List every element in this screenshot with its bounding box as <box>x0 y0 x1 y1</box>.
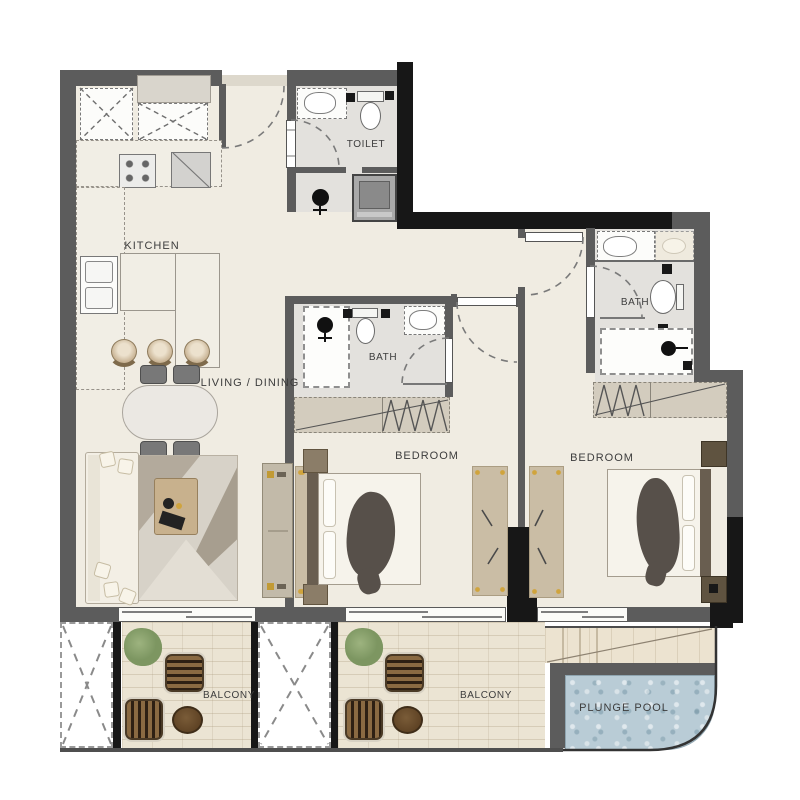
balcony1-chair <box>125 699 163 740</box>
jamb-bedroom2-door <box>518 229 525 238</box>
room-label-kitchen: KITCHEN <box>124 240 179 252</box>
sliding-door-bedroom1 <box>345 607 506 622</box>
appliance-box-1 <box>80 88 133 140</box>
bath1-fitting <box>381 309 390 318</box>
bedroom1-headboard <box>307 473 318 585</box>
bath1-toilet-tank <box>352 308 378 318</box>
shower-tray <box>359 181 390 209</box>
wall-between-bedrooms <box>518 287 525 527</box>
tv-console <box>262 463 293 598</box>
bedroom1-pillow <box>323 531 336 579</box>
bath1-shower-head-icon <box>317 317 333 333</box>
wall-bath1-right-b <box>445 383 453 397</box>
bedroom2-door <box>525 232 583 242</box>
balcony2-table <box>392 706 423 734</box>
kitchen-sink-basin-1 <box>85 261 113 283</box>
balcony1-table <box>172 706 203 734</box>
wall-right-upper <box>694 229 710 372</box>
wall-black-vertical <box>397 62 413 212</box>
room-label-bedroom1: BEDROOM <box>395 450 459 462</box>
bath2-toilet-tank <box>676 284 684 310</box>
bedroom2-pillow <box>682 525 695 571</box>
room-label-bedroom2: BEDROOM <box>570 452 634 464</box>
coffee-table-accent <box>176 503 182 509</box>
void-area-middle <box>258 622 331 748</box>
entry-door-leaf <box>219 84 226 148</box>
balcony1-chair <box>165 654 204 692</box>
console-decor <box>277 584 286 589</box>
void-area-left <box>60 622 113 748</box>
balcony-divider-b <box>251 622 258 748</box>
dining-table <box>122 385 218 440</box>
fridge <box>171 152 211 188</box>
bedroom2-pillow <box>682 475 695 521</box>
sofa-back-cushions <box>88 455 100 601</box>
balcony-divider-c <box>331 622 338 748</box>
dining-chair <box>173 365 200 384</box>
room-label-plunge-pool: PLUNGE POOL <box>579 702 669 714</box>
toilet-room-sink-basin <box>304 92 336 114</box>
sofa-pillow <box>99 451 117 469</box>
room-label-toilet: TOILET <box>347 139 385 150</box>
wall-toilet-left-b <box>287 168 296 212</box>
room-label-bath2: BATH <box>621 297 649 308</box>
kitchen-peninsula-seam <box>176 254 219 309</box>
jamb-bedroom1-door-right <box>516 294 524 307</box>
balcony2-chair <box>345 699 383 740</box>
console-decor <box>277 472 286 477</box>
toilet-fitting <box>385 91 394 100</box>
floor-plan: KITCHEN TOILET LIVING / DINING BATH BATH… <box>0 0 800 800</box>
wall-top-toilet <box>287 70 399 86</box>
bedroom1-nightstand-bottom <box>303 584 328 605</box>
sliding-door-living <box>118 607 256 622</box>
wall-bath1-top <box>285 296 453 304</box>
bedroom2-headboard <box>700 469 711 577</box>
bedroom2-rug <box>529 466 564 598</box>
wall-right-lower <box>727 382 743 517</box>
column-bottom-right <box>710 600 733 628</box>
toilet-bowl <box>360 102 381 130</box>
wall-bath2-left-a <box>586 228 595 266</box>
stove <box>119 154 156 188</box>
console-shelf-line <box>268 530 288 532</box>
bath2-bathtub <box>600 328 693 375</box>
appliance-box-2 <box>138 103 208 140</box>
bath2-tub-drain <box>683 361 692 370</box>
sliding-door-bedroom2 <box>537 607 628 622</box>
bedroom2-nightstand-top <box>701 441 727 467</box>
balcony1-plant <box>124 628 162 666</box>
bedroom1-door <box>457 297 517 306</box>
shower-head-icon <box>312 189 329 206</box>
room-label-bath1: BATH <box>369 352 397 363</box>
wall-toilet-divider-a <box>296 167 346 173</box>
bath2-fitting <box>662 264 672 274</box>
bedroom2-wardrobe <box>593 382 727 418</box>
bath1-toilet-bowl <box>356 318 375 344</box>
dining-chair <box>140 365 167 384</box>
wall-bottom-a <box>60 607 118 622</box>
sofa-pillow <box>117 458 134 475</box>
console-accent <box>267 583 274 590</box>
balcony2-plant <box>345 628 383 666</box>
kitchen-counter-marble <box>137 75 211 103</box>
toilet-door <box>286 120 296 168</box>
bath2-door <box>586 266 595 318</box>
sofa-pillow <box>103 581 120 598</box>
wall-black-horizontal <box>397 212 672 229</box>
bar-stool <box>111 339 137 364</box>
wall-top-right <box>672 212 710 229</box>
toilet-fitting <box>346 93 355 102</box>
room-label-living-dining: LIVING / DINING <box>201 377 300 389</box>
console-accent <box>267 471 274 478</box>
bath1-sink-basin <box>409 310 437 330</box>
wall-right-step <box>694 370 743 382</box>
pool-wall-top <box>550 663 715 675</box>
bedroom1-wardrobe-divider <box>382 397 383 433</box>
coffee-table-decor <box>163 498 174 509</box>
bedroom1-wardrobe <box>294 397 450 433</box>
bedroom1-rug-right <box>472 466 508 596</box>
wall-bottom-b <box>256 607 345 622</box>
bar-stool <box>184 339 210 364</box>
room-label-balcony1: BALCONY <box>203 690 255 701</box>
pool-wall-left <box>550 663 565 748</box>
entry-threshold <box>222 75 287 86</box>
balcony2-chair <box>385 654 424 692</box>
shower-step <box>357 212 392 217</box>
balcony-divider-a <box>113 622 121 748</box>
pool-deck <box>545 626 715 663</box>
bath2-sink-basin <box>603 236 637 257</box>
bedroom1-nightstand-top <box>303 449 328 473</box>
toilet-tank <box>357 91 384 102</box>
wall-bottom-c <box>628 607 710 622</box>
bath1-fitting <box>343 309 352 318</box>
bath2-toilet-bowl <box>650 280 676 314</box>
wall-toilet-divider-b <box>362 167 397 173</box>
room-label-balcony2: BALCONY <box>460 690 512 701</box>
wall-toilet-left-a <box>287 86 296 120</box>
bedroom1-pillow <box>323 479 336 527</box>
bath2-tub-faucet <box>661 341 676 356</box>
bar-stool <box>147 339 173 364</box>
kitchen-sink-basin-2 <box>85 287 113 309</box>
bath2-towel <box>662 238 686 254</box>
wall-bath2-left-b <box>586 318 595 373</box>
bedroom2-lamp <box>709 584 718 593</box>
bedroom2-wardrobe-divider <box>650 382 651 418</box>
bath1-door <box>445 338 453 383</box>
wall-left <box>60 70 76 622</box>
